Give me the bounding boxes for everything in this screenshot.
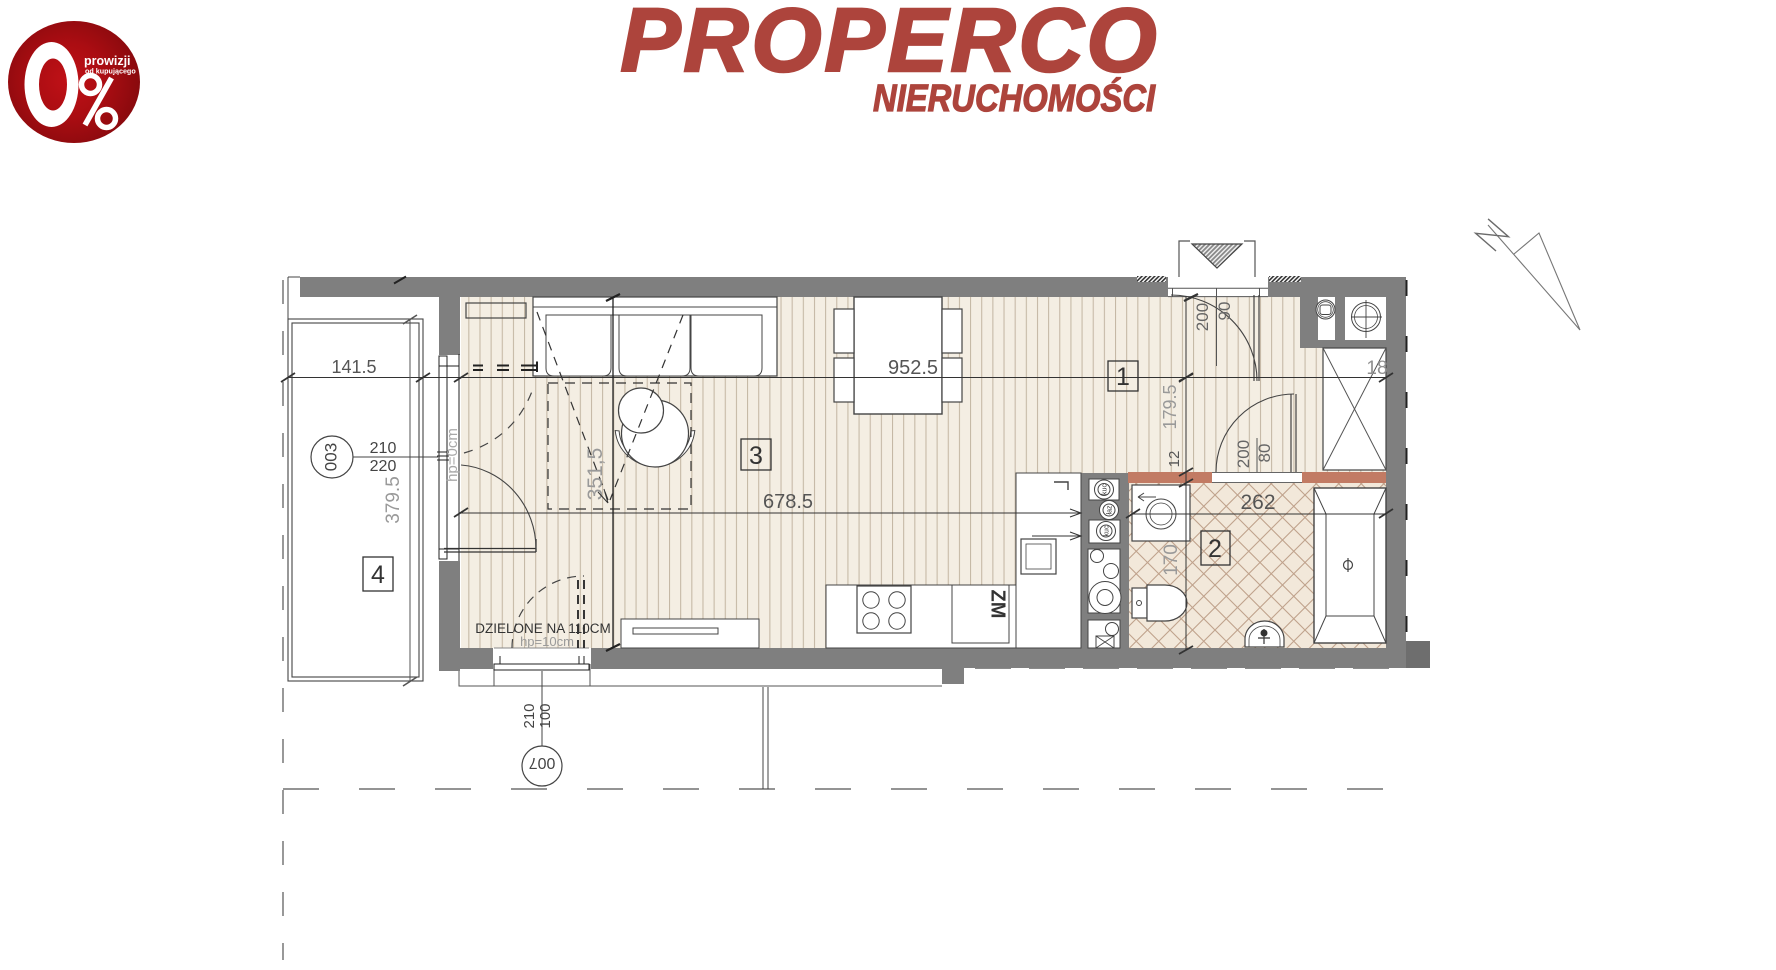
svg-text:hp=10cm: hp=10cm	[520, 634, 574, 649]
svg-text:007: 007	[529, 754, 556, 771]
svg-text:łaz: łaz	[1107, 505, 1114, 514]
svg-text:003: 003	[321, 443, 340, 471]
svg-text:kuc: kuc	[1102, 484, 1109, 495]
svg-text:18: 18	[1366, 358, 1387, 379]
svg-text:170: 170	[1161, 544, 1182, 576]
svg-text:12: 12	[1166, 451, 1183, 468]
svg-text:379.5: 379.5	[383, 476, 404, 524]
svg-text:kuc: kuc	[1104, 525, 1111, 536]
svg-text:1: 1	[1116, 363, 1130, 391]
svg-text:100: 100	[537, 703, 554, 728]
svg-text:NIERUCHOMOŚCI: NIERUCHOMOŚCI	[873, 77, 1156, 120]
svg-text:200: 200	[1234, 440, 1253, 468]
svg-text:4: 4	[371, 561, 385, 589]
svg-text:141.5: 141.5	[331, 357, 376, 377]
svg-text:200: 200	[1193, 303, 1212, 331]
svg-text:351,5: 351,5	[584, 448, 607, 501]
svg-text:2: 2	[1208, 535, 1222, 563]
svg-text:210: 210	[370, 440, 397, 457]
svg-text:3: 3	[749, 442, 763, 470]
svg-text:80: 80	[1255, 444, 1274, 463]
svg-text:od kupującego: od kupującego	[85, 67, 136, 76]
svg-text:ZM: ZM	[987, 590, 1009, 619]
svg-text:262: 262	[1240, 491, 1275, 514]
svg-text:210: 210	[521, 703, 538, 728]
svg-text:678.5: 678.5	[763, 491, 813, 513]
svg-text:hp=0cm: hp=0cm	[444, 428, 461, 482]
svg-text:220: 220	[370, 458, 397, 475]
svg-text:90: 90	[1215, 302, 1234, 321]
svg-text:179.5: 179.5	[1160, 384, 1180, 429]
svg-text:952.5: 952.5	[888, 357, 938, 379]
